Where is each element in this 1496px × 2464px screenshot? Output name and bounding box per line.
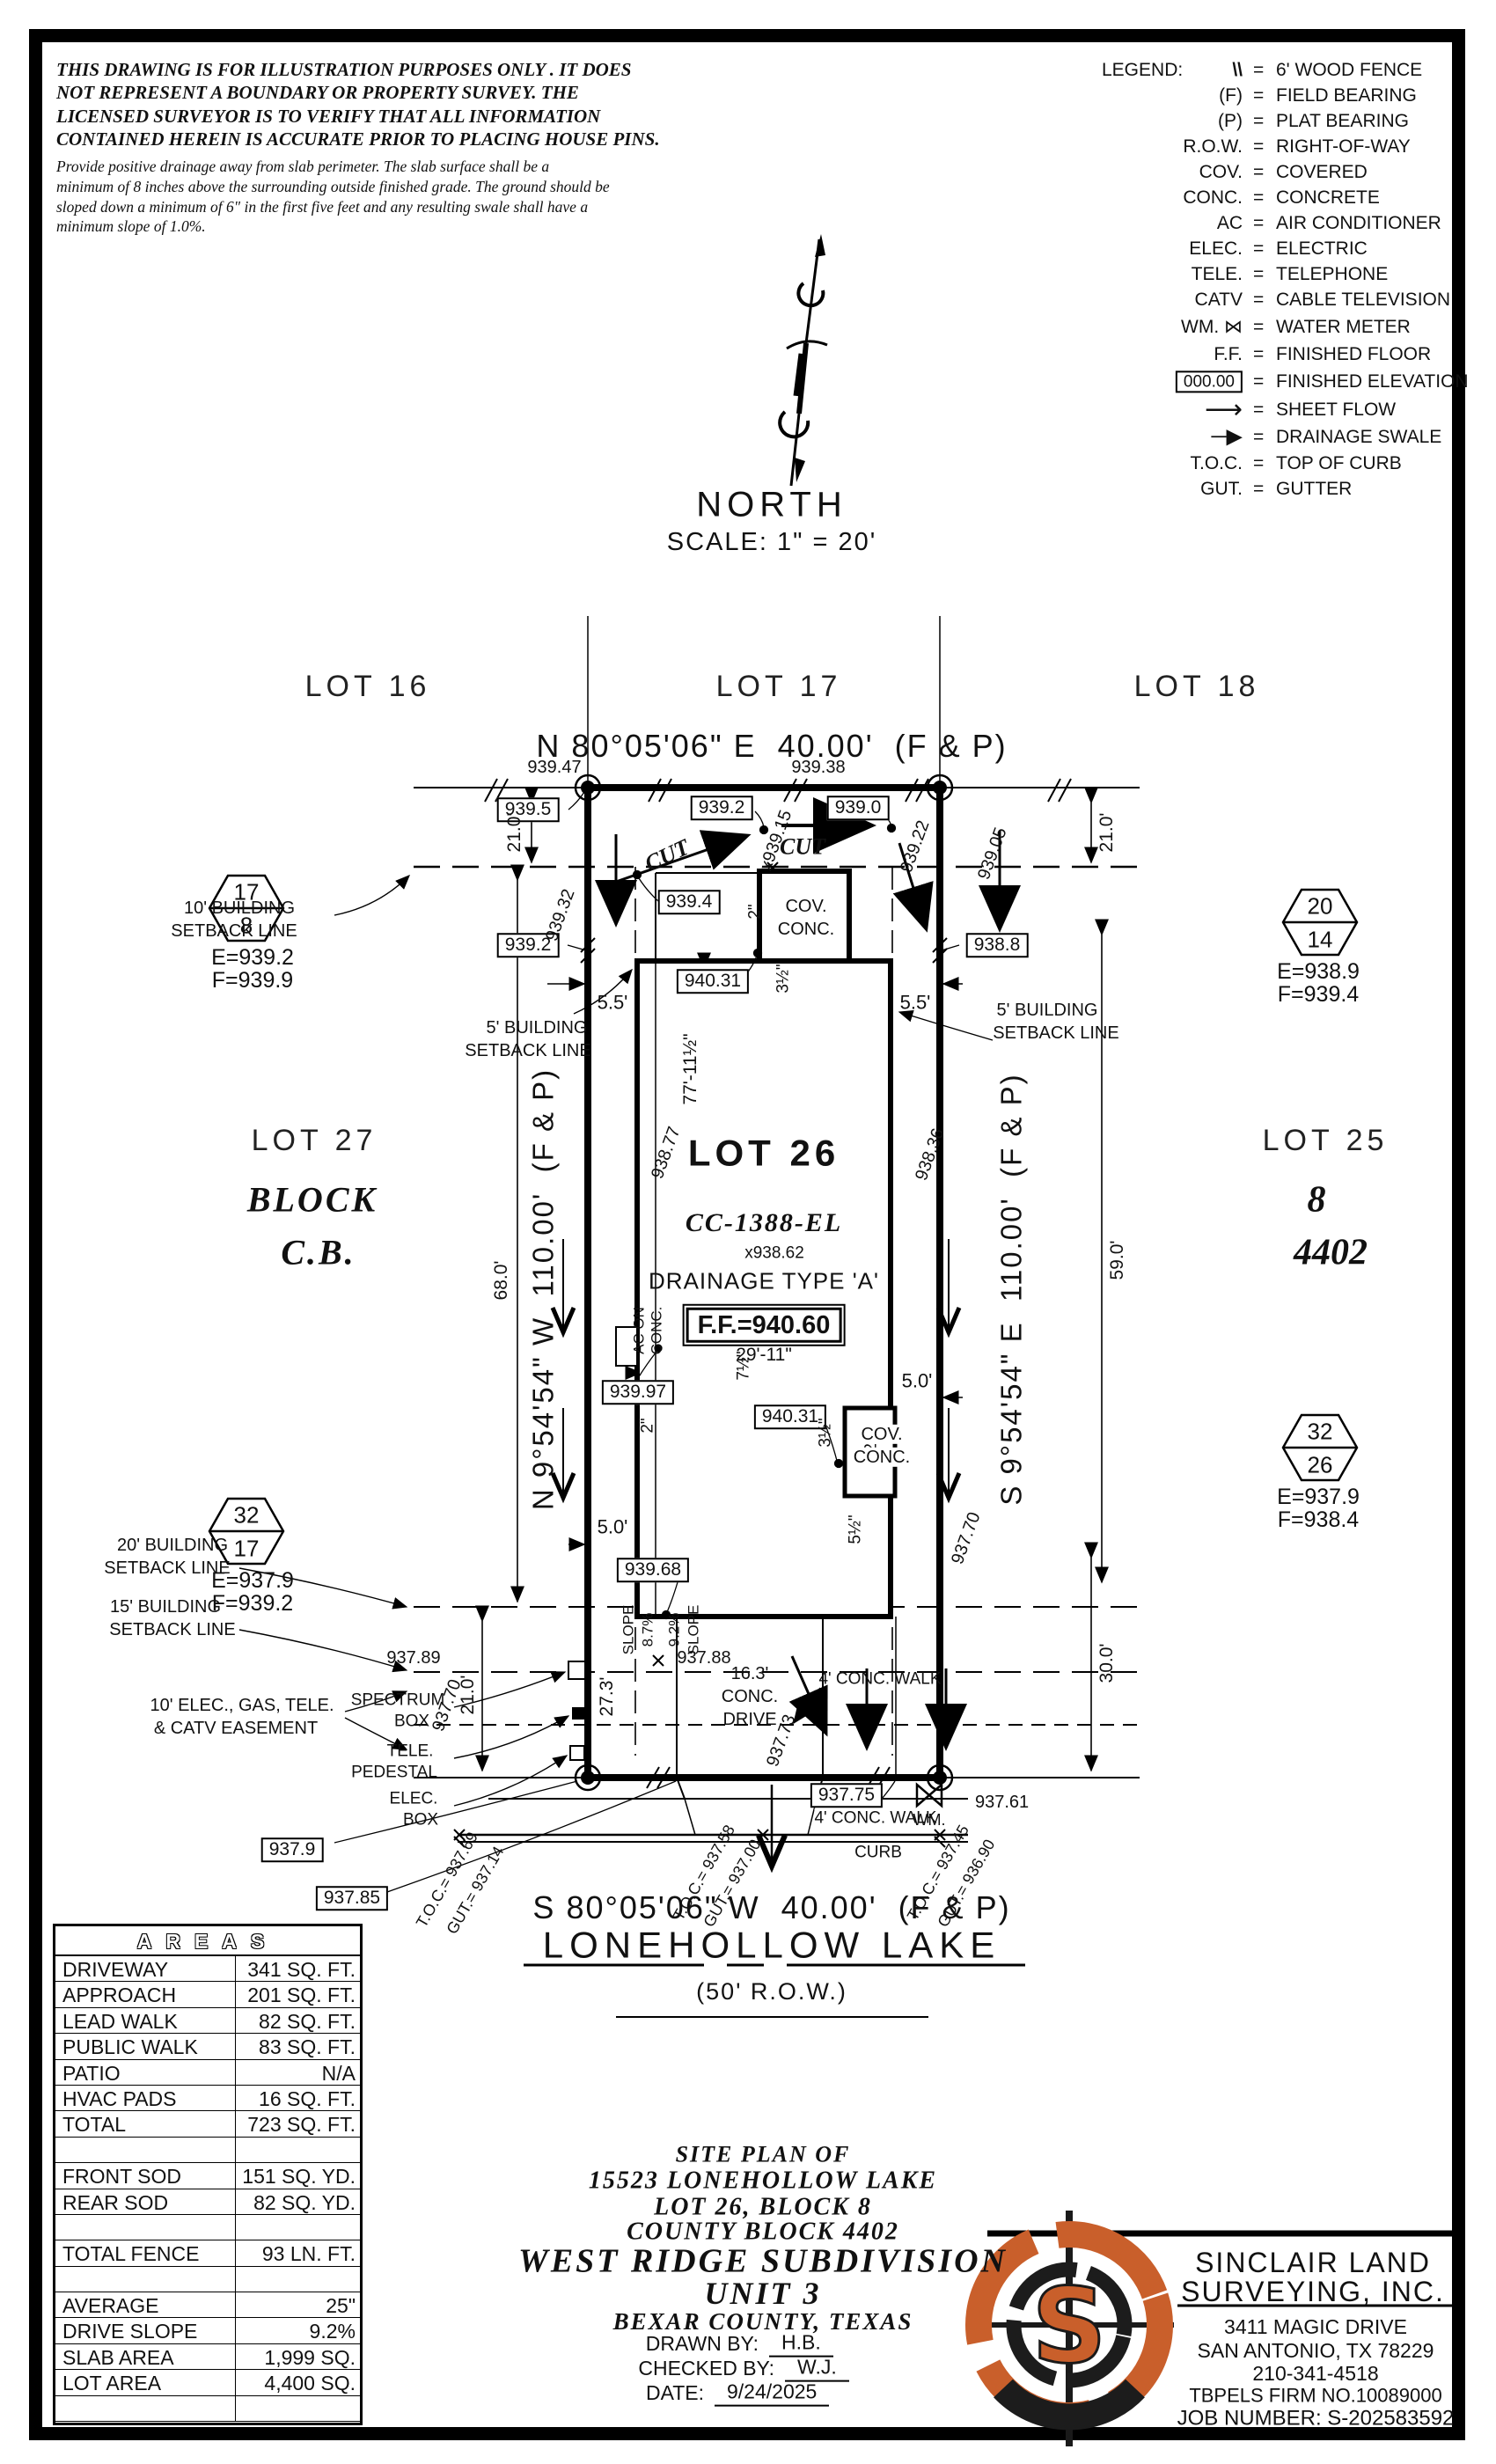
surveyor-firm: TBPELS FIRM NO.10089000 [1189, 2386, 1441, 2408]
marker3-top: 32 [1308, 1419, 1333, 1444]
legend-sym: TELE. [1192, 264, 1243, 285]
county-block-label: C.B. [281, 1234, 356, 1273]
elec-box-2: BOX [403, 1810, 438, 1829]
tele-pedestal-2: PEDESTAL [351, 1763, 437, 1781]
marker4-top: 32 [234, 1502, 260, 1528]
elev-940-31-rear: 940.31 [677, 969, 749, 994]
legend-sym: (P) [1218, 111, 1243, 132]
legend-title: LEGEND: [1102, 60, 1183, 81]
areas-row-value: 201 SQ. FT. [235, 1982, 360, 2007]
title-lot-block: LOT 26, BLOCK 8 [654, 2193, 872, 2220]
elev-939-0: 939.0 [827, 796, 890, 820]
water-meter-label: WM. [913, 1811, 946, 1829]
legend-sym: ELEC. [1189, 238, 1243, 260]
marker3-e: E=937.9 [1277, 1485, 1360, 1509]
drive-dim: 16.3' [731, 1664, 769, 1683]
areas-row-label: HVAC PADS [55, 2086, 235, 2111]
legend-sym: GUT. [1200, 479, 1243, 500]
plan-number: CC-1388-EL [686, 1208, 842, 1238]
dim-3-5in-porch: 3½" [816, 1418, 834, 1447]
slope-87: 8.7% [639, 1613, 656, 1647]
slope-label-1: SLOPE [620, 1605, 636, 1655]
legend-eq: = [1253, 317, 1264, 338]
legend-label: FIELD BEARING [1276, 85, 1417, 106]
legend-label: TELEPHONE [1276, 264, 1388, 285]
legend-eq: = [1253, 60, 1264, 81]
areas-table: AREAS DRIVEWAY341 SQ. FT. APPROACH201 SQ… [53, 1924, 363, 2425]
areas-row-value [235, 2215, 360, 2240]
surveyor-name-1: SINCLAIR LAND [1195, 2248, 1431, 2279]
legend-eq: = [1253, 371, 1264, 392]
lot16-label: LOT 16 [305, 670, 431, 703]
title-site-plan-of: SITE PLAN OF [676, 2141, 851, 2167]
areas-row-label: LEAD WALK [55, 2008, 235, 2034]
legend-eq: = [1253, 290, 1264, 311]
drawn-by-value: H.B. [769, 2332, 833, 2358]
cov-conc-rear-2: CONC. [778, 920, 834, 939]
areas-row-value: 723 SQ. FT. [235, 2111, 360, 2137]
cov-conc-porch-1: COV. [861, 1425, 902, 1444]
areas-row-value [235, 2138, 360, 2163]
areas-row-label: DRIVEWAY [55, 1956, 235, 1982]
setback-5-right-line2: SETBACK LINE [993, 1023, 1118, 1043]
elec-box-1: ELEC. [390, 1789, 438, 1808]
areas-row-label [55, 2215, 235, 2240]
spot-elevation-938-62: x938.62 [744, 1243, 804, 1262]
areas-row-value: 9.2% [235, 2318, 360, 2343]
surveyor-job-number: JOB NUMBER: S-202583592 [1177, 2408, 1455, 2431]
areas-row-value: 4,400 SQ. FT. [235, 2370, 360, 2395]
areas-row-label: FRONT SOD [55, 2163, 235, 2189]
legend-sym: (F) [1219, 85, 1243, 106]
fence-symbol: \\ [1232, 60, 1243, 81]
checked-by-value: W.J. [785, 2357, 849, 2382]
areas-row-value: N/A [235, 2060, 360, 2086]
areas-row-value: 1,999 SQ. FT. [235, 2344, 360, 2370]
legend-eq: = [1253, 213, 1264, 234]
cut-label-2: CUT [780, 833, 825, 859]
legend-sym: T.O.C. [1190, 453, 1243, 474]
marker1-e: E=939.2 [211, 945, 294, 970]
dim-5-0-left: 5.0' [598, 1517, 628, 1539]
drainage-swale-symbol: ─▶ [1212, 426, 1243, 450]
dim-7-5in: 7½" [734, 1351, 752, 1380]
legend-eq: = [1253, 479, 1264, 500]
dim-68: 68.0' [491, 1261, 512, 1301]
title-county-state: BEXAR COUNTY, TEXAS [613, 2308, 913, 2335]
areas-row-value [235, 2396, 360, 2422]
areas-row-value: 82 SQ. YD. [235, 2189, 360, 2215]
slope-label-2: SLOPE [685, 1605, 701, 1655]
title-address: 15523 LONEHOLLOW LAKE [589, 2167, 937, 2194]
legend-eq: = [1253, 427, 1264, 448]
marker2-f: F=939.4 [1278, 982, 1359, 1007]
legend-label: RIGHT-OF-WAY [1276, 136, 1411, 158]
setback-5-left-line2: SETBACK LINE [465, 1041, 590, 1060]
dim-2in-mid: 2" [638, 1418, 656, 1433]
areas-row-label: TOTAL [55, 2111, 235, 2137]
legend-label: COVERED [1276, 162, 1368, 183]
dim-21-left-bottom: 21.0' [458, 1676, 479, 1715]
dim-21-right: 21.0' [1096, 813, 1118, 853]
legend-label: FINISHED FLOOR [1276, 344, 1431, 365]
legend-sym: COV. [1199, 162, 1243, 183]
areas-row-label [55, 2138, 235, 2163]
drainage-type: DRAINAGE TYPE 'A' [649, 1268, 879, 1294]
street-name: LONEHOLLOW LAKE [543, 1924, 1001, 1965]
legend-label: GUTTER [1276, 479, 1352, 500]
bearing-west-line: N 9°54'54" W 110.00' (F & P) [528, 1068, 561, 1510]
marker2-top: 20 [1308, 893, 1333, 919]
water-meter-icon [917, 1785, 942, 1806]
surveyor-address-1: 3411 MAGIC DRIVE [1224, 2316, 1407, 2339]
slope-92: 9.2% [665, 1613, 682, 1647]
elev-939-4: 939.4 [658, 890, 721, 914]
legend-eq: = [1253, 85, 1264, 106]
tele-pedestal-1: TELE. [387, 1742, 434, 1760]
street-row: (50' R.O.W.) [696, 1978, 847, 2005]
marker2-bottom: 14 [1308, 927, 1333, 952]
cov-conc-porch-2: CONC. [854, 1448, 910, 1467]
areas-row-label: PUBLIC WALK [55, 2034, 235, 2059]
legend-label: CONCRETE [1276, 187, 1380, 209]
water-meter-legend-symbol: WM. ⋈ [1181, 317, 1243, 338]
areas-row-label: REAR SOD [55, 2189, 235, 2215]
areas-row-value: 25" [235, 2292, 360, 2318]
areas-row-label: TOTAL FENCE [55, 2240, 235, 2266]
drive-conc: CONC. [722, 1687, 778, 1706]
surveyor-phone: 210-341-4518 [1252, 2363, 1378, 2386]
drive-label: DRIVE [722, 1710, 776, 1729]
elev-939-2-top: 939.2 [691, 796, 753, 820]
legend-eq: = [1253, 136, 1264, 158]
easement-line2: & CATV EASEMENT [154, 1719, 318, 1738]
legend-label: FINISHED ELEVATION [1276, 371, 1469, 392]
title-county-block: COUNTY BLOCK 4402 [627, 2218, 899, 2245]
areas-row-value: 82 SQ. FT. [235, 2008, 360, 2034]
legend-sym: CATV [1195, 290, 1243, 311]
disclaimer-primary: THIS DRAWING IS FOR ILLUSTRATION PURPOSE… [56, 58, 660, 150]
checked-by-label: CHECKED BY: [638, 2358, 774, 2380]
areas-row-value: 151 SQ. YD. [235, 2163, 360, 2189]
dim-5-5in: 5½" [846, 1514, 864, 1544]
surveyor-address-2: SAN ANTONIO, TX 78229 [1198, 2340, 1434, 2363]
lot25-label: LOT 25 [1263, 1124, 1389, 1157]
legend-label: 6' WOOD FENCE [1276, 60, 1422, 81]
finished-elevation-symbol: 000.00 [1176, 370, 1243, 392]
areas-row-value: 83 SQ. FT. [235, 2034, 360, 2059]
date-label: DATE: [646, 2382, 704, 2405]
areas-table-title: AREAS [55, 1926, 360, 1956]
legend-label: ELECTRIC [1276, 238, 1368, 260]
setback-5-left-line1: 5' BUILDING [487, 1018, 588, 1038]
areas-row-label: PATIO [55, 2060, 235, 2086]
lot27-label: LOT 27 [252, 1124, 378, 1157]
elev-937-9: 937.9 [261, 1837, 324, 1862]
lot25-block-label: 8 [1308, 1179, 1326, 1221]
easement-line1: 10' ELEC., GAS, TELE. [150, 1696, 334, 1715]
legend-sym: CONC. [1183, 187, 1243, 209]
disclaimer-drainage-note: Provide positive drainage away from slab… [56, 157, 610, 237]
legend-label: SHEET FLOW [1276, 400, 1396, 421]
areas-row-label: LOT AREA [55, 2370, 235, 2395]
marker3-f: F=938.4 [1278, 1507, 1359, 1532]
curb-label: CURB [854, 1843, 902, 1861]
dim-30: 30.0' [1096, 1644, 1118, 1683]
ac-label-1: AC ON [630, 1307, 647, 1354]
sheet-flow-symbol: ⟶ [1205, 395, 1243, 425]
elev-937-75: 937.75 [810, 1783, 883, 1808]
legend-eq: = [1253, 264, 1264, 285]
legend-sym: R.O.W. [1183, 136, 1243, 158]
legend-eq: = [1253, 344, 1264, 365]
areas-row-value: 341 SQ. FT. [235, 1956, 360, 1982]
dim-21-left: 21.0' [504, 813, 525, 853]
legend-sym: F.F. [1214, 344, 1243, 365]
finished-floor-elevation: F.F.=940.60 [686, 1308, 842, 1343]
marker2-e: E=938.9 [1277, 959, 1360, 984]
legend-eq: = [1253, 187, 1264, 209]
dim-59: 59.0' [1107, 1241, 1128, 1280]
dim-5-0-right: 5.0' [902, 1371, 933, 1393]
dim-3-5in-rear: 3½" [774, 964, 792, 993]
areas-row-label: DRIVE SLOPE [55, 2318, 235, 2343]
setback-15-line1: 15' BUILDING [110, 1597, 221, 1617]
dim-77-11: 77'-11½" [680, 1033, 701, 1104]
legend-sym: AC [1217, 213, 1243, 234]
areas-row-label: AVERAGE EXPOSURE [55, 2292, 235, 2318]
areas-row-label [55, 2267, 235, 2292]
legend-eq: = [1253, 453, 1264, 474]
setback-10-line2: SETBACK LINE [171, 921, 297, 941]
logo-letter: S [1032, 2265, 1107, 2387]
dim-27-3: 27.3' [597, 1677, 618, 1717]
elev-939-38: 939.38 [791, 758, 845, 777]
north-label: NORTH [696, 486, 847, 525]
elev-937-61: 937.61 [975, 1793, 1029, 1812]
elev-937-89: 937.89 [386, 1648, 440, 1668]
drawn-by-label: DRAWN BY: [646, 2333, 759, 2356]
surveyor-name-2: SURVEYING, INC. [1181, 2277, 1445, 2308]
areas-row-label: SLAB AREA [55, 2344, 235, 2370]
block-label: BLOCK [247, 1181, 378, 1221]
elev-939-68: 939.68 [617, 1558, 689, 1582]
areas-row-label [55, 2396, 235, 2422]
lot17-label: LOT 17 [716, 670, 842, 703]
elev-937-85: 937.85 [316, 1886, 388, 1910]
areas-row-value: 16 SQ. FT. [235, 2086, 360, 2111]
title-unit: UNIT 3 [705, 2276, 822, 2311]
dim-5-5-left: 5.5' [598, 993, 628, 1015]
legend-label: CABLE TELEVISION [1276, 290, 1450, 311]
conc-walk-upper: 4' CONC. WALK [818, 1669, 941, 1688]
setback-10-line1: 10' BUILDING [184, 898, 295, 918]
bearing-north-line: N 80°05'06" E 40.00' (F & P) [536, 729, 1007, 764]
marker4-f: F=939.2 [212, 1591, 293, 1616]
elev-939-47: 939.47 [527, 758, 581, 777]
legend-label: DRAINAGE SWALE [1276, 427, 1441, 448]
scale-label: SCALE: 1" = 20' [667, 528, 876, 556]
lot18-label: LOT 18 [1134, 670, 1260, 703]
areas-row-value: 93 LN. FT. [235, 2240, 360, 2266]
areas-row-label: APPROACH [55, 1982, 235, 2007]
legend-eq: = [1253, 400, 1264, 421]
spectrum-label-2: BOX [394, 1712, 429, 1730]
elev-939-97: 939.97 [602, 1380, 674, 1404]
legend-label: AIR CONDITIONER [1276, 213, 1441, 234]
date-value: 9/24/2025 [715, 2381, 829, 2407]
spectrum-label-1: SPECTRUM [351, 1690, 445, 1709]
ac-label-2: CONC. [648, 1307, 664, 1355]
legend-label: TOP OF CURB [1276, 453, 1402, 474]
legend-label: PLAT BEARING [1276, 111, 1409, 132]
cov-conc-rear-1: COV. [785, 897, 826, 916]
marker4-bottom: 17 [234, 1536, 260, 1561]
dim-5-5-right: 5.5' [900, 993, 931, 1015]
marker3-bottom: 26 [1308, 1452, 1333, 1478]
setback-20-line2: SETBACK LINE [104, 1558, 230, 1578]
dim-2in-porch: 2" [745, 904, 764, 919]
setback-15-line2: SETBACK LINE [109, 1620, 235, 1639]
legend-eq: = [1253, 162, 1264, 183]
bearing-east-line: S 9°54'54" E 110.00' (F & P) [996, 1073, 1029, 1505]
legend-eq: = [1253, 111, 1264, 132]
legend-label: WATER METER [1276, 317, 1411, 338]
setback-5-right-line1: 5' BUILDING [997, 1001, 1098, 1020]
legend-eq: = [1253, 238, 1264, 260]
lot25-cb-label: 4402 [1294, 1232, 1368, 1273]
marker1-f: F=939.9 [212, 968, 293, 993]
north-arrow-icon [780, 234, 827, 486]
areas-row-value [235, 2267, 360, 2292]
setback-20-line1: 20' BUILDING [117, 1536, 228, 1555]
site-plan-sheet: S THIS DRAWING IS FOR ILLUSTRATION PURPO… [0, 0, 1496, 2464]
elev-938-8: 938.8 [966, 933, 1029, 957]
lot26-label: LOT 26 [688, 1132, 840, 1173]
